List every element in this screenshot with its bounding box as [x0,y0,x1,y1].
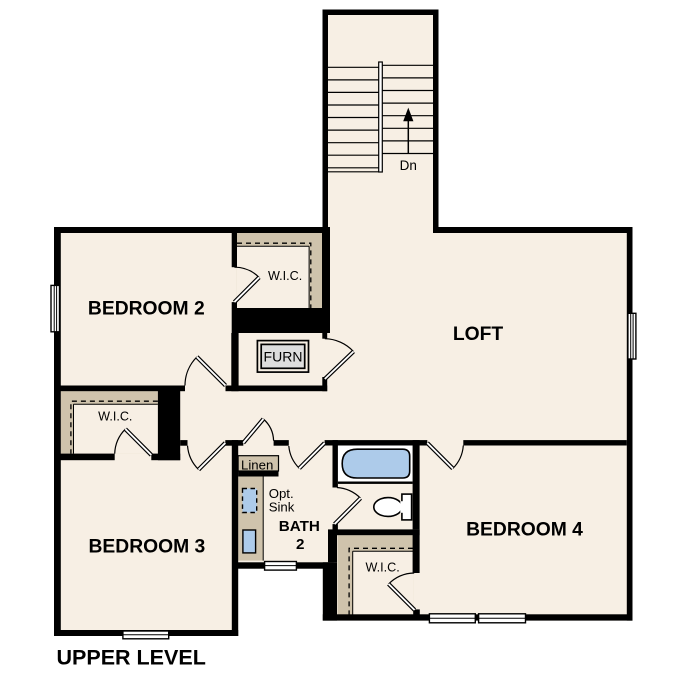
svg-text:Dn: Dn [400,158,417,173]
svg-text:W.I.C.: W.I.C. [98,410,132,424]
svg-text:Sink: Sink [269,499,295,514]
svg-text:FURN: FURN [264,348,303,364]
svg-text:W.I.C.: W.I.C. [365,560,399,574]
svg-text:BEDROOM 2: BEDROOM 2 [88,299,205,320]
svg-text:BATH: BATH [279,518,320,535]
svg-text:UPPER LEVEL: UPPER LEVEL [57,646,206,670]
svg-text:2: 2 [296,536,304,553]
svg-text:BEDROOM 4: BEDROOM 4 [466,519,583,540]
svg-text:BEDROOM 3: BEDROOM 3 [89,537,206,558]
svg-text:Linen: Linen [241,458,273,473]
svg-text:W.I.C.: W.I.C. [268,269,302,283]
svg-text:LOFT: LOFT [453,324,504,345]
